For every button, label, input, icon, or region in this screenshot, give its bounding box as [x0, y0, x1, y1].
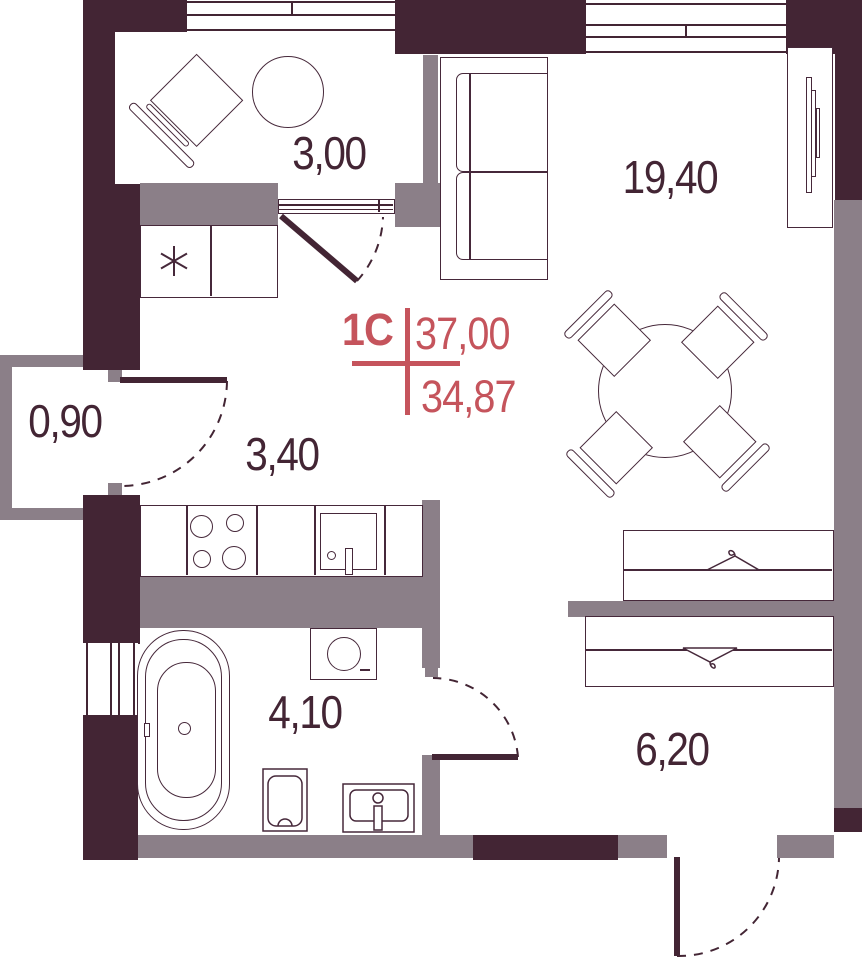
stove-burner: [222, 546, 246, 570]
wall-balcony-door-jamb: [395, 183, 440, 227]
wall-top-mid: [395, 0, 586, 54]
storage-area-label: 0,90: [8, 398, 122, 444]
hallway-area-label: 3,40: [225, 431, 339, 477]
stove-burner: [193, 550, 211, 568]
closet-door-arc: [121, 381, 227, 486]
bathroom-area-label: 4,10: [248, 689, 362, 735]
wall-living-divider: [423, 55, 438, 183]
hanger-icon: [682, 647, 738, 673]
closet-wall-top: [0, 355, 83, 367]
closet-door-jamb-bottom: [108, 483, 122, 495]
kitchen-faucet: [345, 548, 353, 575]
wall-bottom-mid: [473, 835, 618, 860]
closet-door-jamb-top: [108, 370, 122, 382]
washing-machine-drum: [327, 637, 361, 671]
toilet: [262, 768, 308, 832]
wall-left-bottom: [83, 715, 138, 860]
balcony-area-label: 3,00: [272, 130, 386, 176]
sofa-back-cushion: [456, 172, 470, 260]
hanger-icon: [705, 548, 761, 572]
tv-screen: [816, 108, 820, 158]
wall-entry-divider: [568, 601, 834, 617]
kitchen-sink-drain: [327, 551, 336, 560]
sofa-seat: [470, 172, 548, 260]
balcony-door-leaf: [281, 216, 357, 281]
stove-burner: [190, 515, 213, 538]
bathtub-handle: [144, 723, 150, 737]
closet-wall-bottom: [0, 508, 83, 520]
wall-bottom-entry-right: [777, 835, 834, 858]
balcony-door-arc: [357, 217, 383, 281]
wall-bath-lower: [422, 755, 440, 835]
total-area-value: 37,00: [415, 311, 510, 356]
wall-left-balcony: [83, 32, 115, 184]
wall-balcony-bottom: [140, 183, 278, 225]
living-window: [586, 0, 786, 54]
living-area-value: 34,87: [421, 374, 516, 419]
wall-top-right: [786, 0, 862, 54]
kitchen-counter: [140, 505, 423, 577]
balcony-door-frame: [278, 199, 395, 214]
stove-burner: [226, 514, 244, 532]
wall-right-column: [834, 200, 862, 808]
sofa-seat: [470, 73, 548, 172]
balcony-table: [252, 56, 324, 128]
wall-left-lower: [83, 495, 140, 644]
bathtub-drain: [178, 722, 191, 735]
plan-type-label: 1С: [289, 307, 393, 352]
bathroom-door-arc: [433, 678, 518, 757]
bathroom-sink: [342, 783, 415, 835]
wall-kitchen-back: [140, 577, 440, 628]
floor-plan: 3,00 19,40 0,90 3,40 4,10 6,20 1С 37,00 …: [0, 0, 862, 958]
wall-bottom-left: [138, 835, 473, 858]
fridge-asterisk-icon: [158, 245, 190, 277]
entrance-door-arc: [677, 858, 779, 956]
wall-bottom-right-block: [834, 808, 862, 832]
bath-door-jamb: [425, 668, 438, 677]
title-divider-horizontal: [352, 361, 460, 366]
balcony-window: [187, 0, 395, 32]
wall-bottom-entry-left: [618, 835, 667, 858]
entry-area-label: 6,20: [615, 726, 729, 772]
sofa-back-cushion: [456, 73, 470, 172]
living-area-label: 19,40: [613, 154, 727, 200]
bathroom-window: [83, 643, 138, 715]
washing-machine-detail: [360, 669, 370, 671]
wall-right-upper: [835, 54, 862, 200]
wall-top-left: [83, 0, 187, 32]
wall-bath-upper: [422, 500, 440, 668]
wall-left-mid: [83, 184, 140, 370]
balcony-chair: [117, 42, 256, 181]
